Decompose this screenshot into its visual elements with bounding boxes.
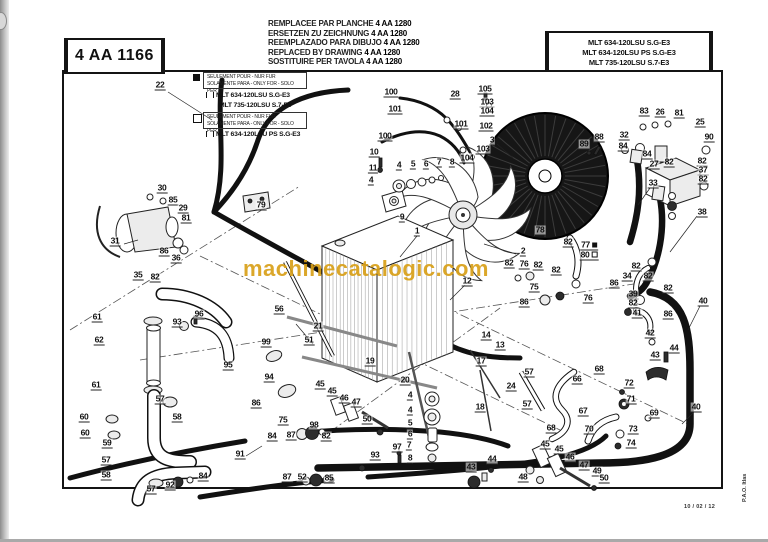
model-line: MLT 735-120LSU S.7-E3 [549,58,709,68]
radiator [322,216,453,382]
watermark: machinecatalogic.com [243,256,489,282]
notice-line: REMPLACEE PAR PLANCHE 4 AA 1280 [268,19,420,29]
fan-motor [97,194,188,257]
bracket-icon [206,92,214,98]
legend-model: MLT 634-120LSU PS S.G-E3 [206,131,300,138]
legend-note-line: SEULEMENT POUR - NUR FUR [207,74,303,81]
date-stamp: 10 / 02 / 12 [684,504,715,510]
notice-line: ERSETZEN ZU ZEICHNUNG 4 AA 1280 [268,29,420,39]
legend-model: MLT 735-120LSU S.7-E3 [219,102,291,109]
model-line: MLT 634-120LSU PS S.G-E3 [549,48,709,58]
replacement-notice: REMPLACEE PAR PLANCHE 4 AA 1280 ERSETZEN… [268,19,420,67]
coolant-tubes [106,294,229,500]
applicable-models-box: MLT 634-120LSU S.G-E3 MLT 634-120LSU PS … [545,31,713,72]
legend-note-box-black: SEULEMENT POUR - NUR FUR SOLAMENTE PARA … [203,72,307,89]
notice-line: SOSTITUIRE PER TAVOLA 4 AA 1280 [268,57,420,67]
legend-white-square [193,114,202,123]
legend-model: MLT 634-120LSU S.G-E3 [206,92,290,99]
bracket-icon [206,131,214,137]
plate-number: 4 AA 1166 [75,47,154,65]
legend-note-line: SEULEMENT POUR - NUR FUR [207,114,303,121]
model-line: MLT 634-120LSU S.G-E3 [549,38,709,48]
parts-catalog-page: 4 AA 1166 REMPLACEE PAR PLANCHE 4 AA 128… [0,0,768,542]
legend-note-box-white: SEULEMENT POUR - NUR FUR SOLAMENTE PARA … [203,112,307,129]
side-note: P.A.O. Itlas [742,474,748,502]
notice-line: REPLACED BY DRAWING 4 AA 1280 [268,48,420,58]
plate-number-box: 4 AA 1166 [64,38,165,74]
legend-black-square [193,74,200,81]
notice-line: REEMPLAZADO PARA DIBUJO 4 AA 1280 [268,38,420,48]
